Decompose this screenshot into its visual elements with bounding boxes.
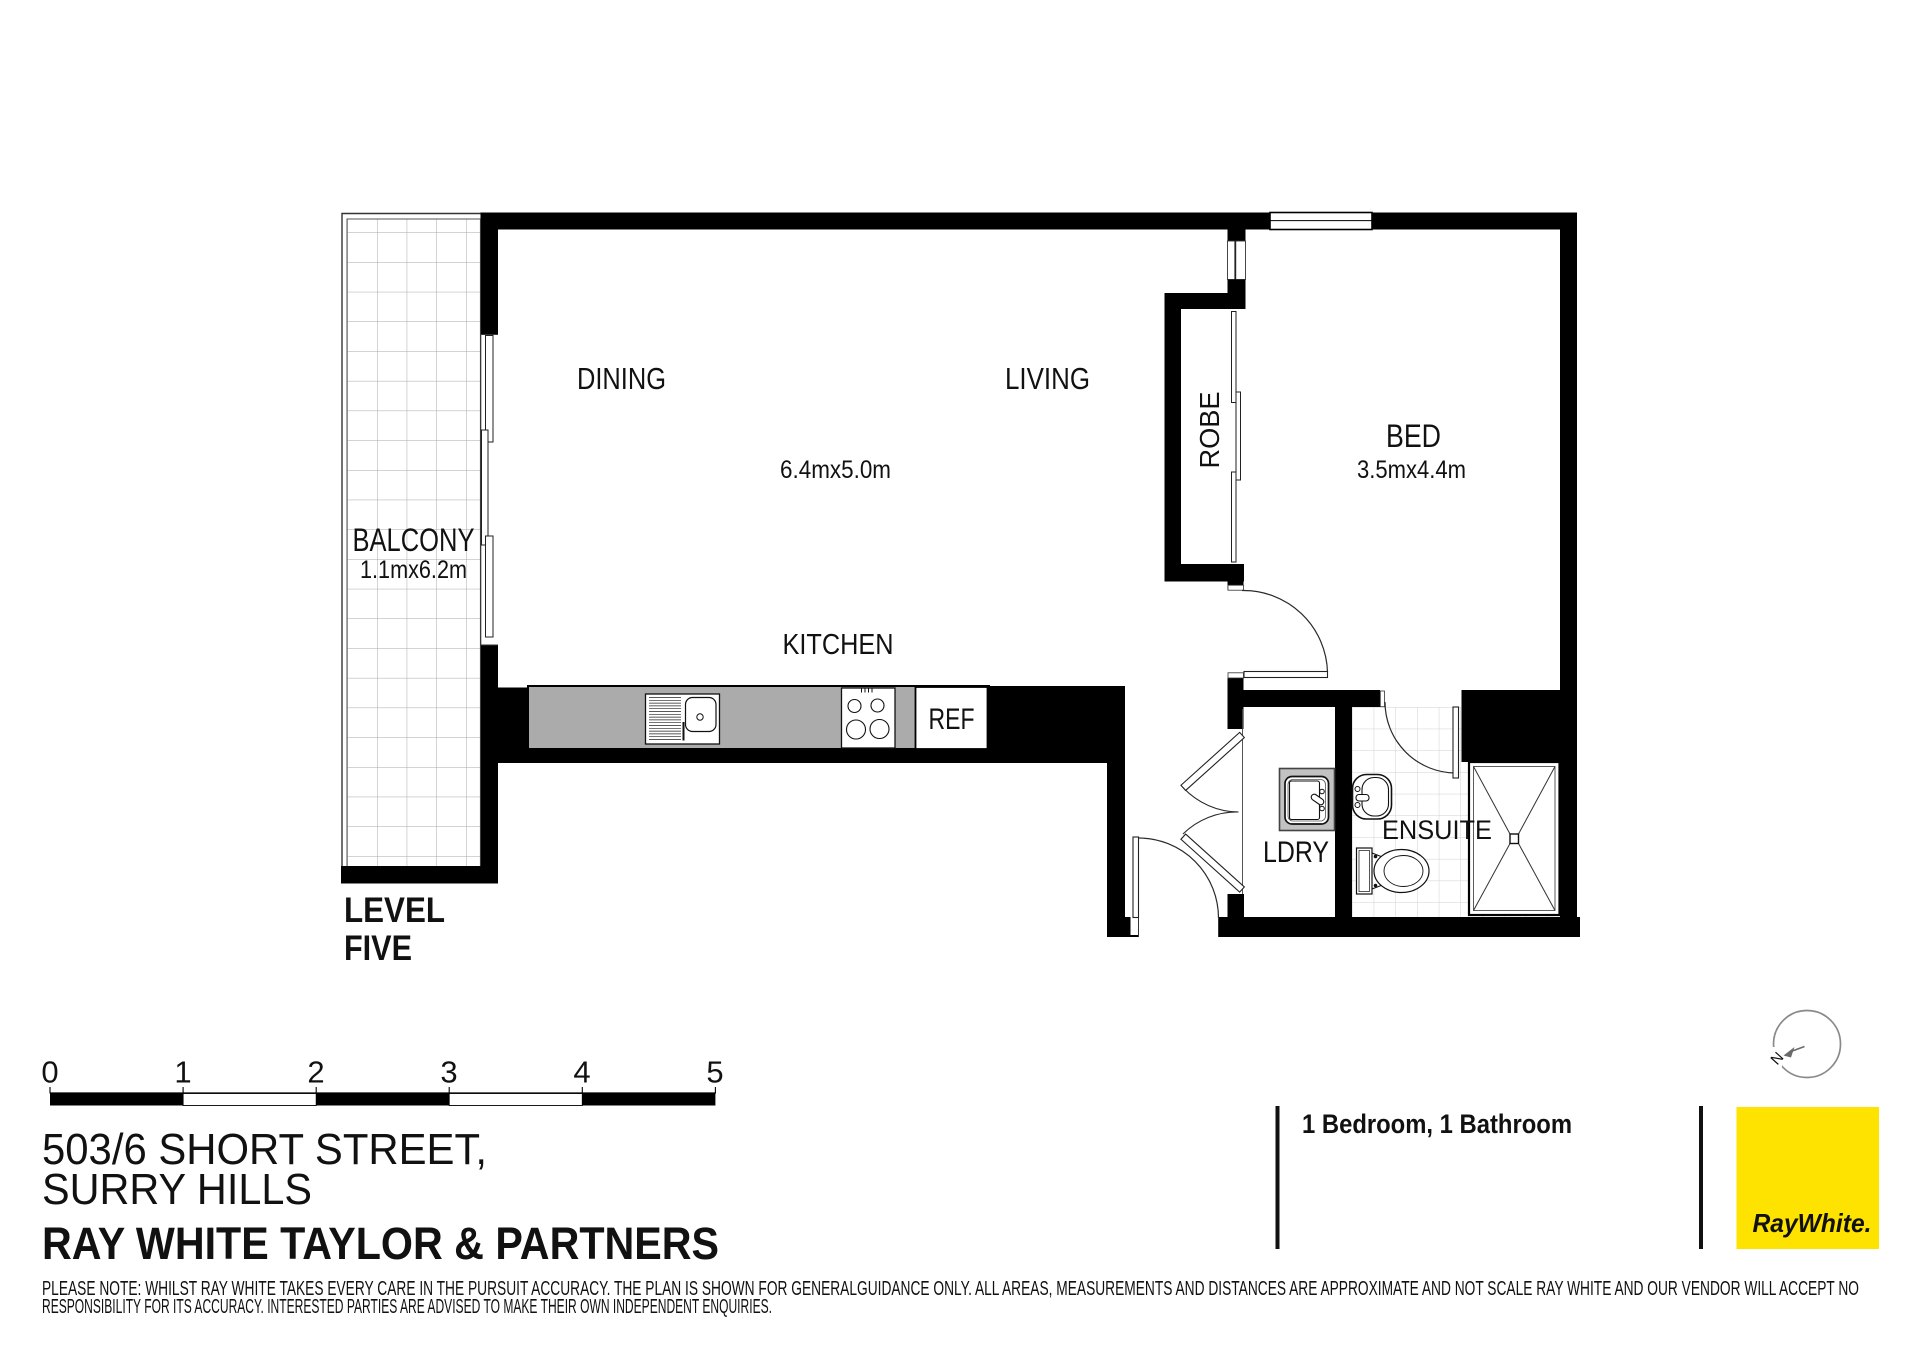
svg-text:RayWhite.: RayWhite. — [1753, 1208, 1872, 1238]
svg-text:4: 4 — [573, 1055, 590, 1090]
svg-text:1: 1 — [174, 1055, 191, 1090]
svg-text:REF: REF — [929, 703, 975, 736]
svg-text:DINING: DINING — [577, 361, 666, 396]
svg-text:LIVING: LIVING — [1005, 361, 1090, 396]
svg-text:1 Bedroom, 1 Bathroom: 1 Bedroom, 1 Bathroom — [1302, 1109, 1572, 1139]
svg-text:KITCHEN: KITCHEN — [783, 629, 894, 661]
svg-text:0: 0 — [41, 1055, 58, 1090]
svg-text:6.4mx5.0m: 6.4mx5.0m — [780, 456, 891, 484]
svg-text:BED: BED — [1386, 418, 1441, 454]
svg-text:LDRY: LDRY — [1263, 836, 1329, 869]
svg-text:SURRY HILLS: SURRY HILLS — [42, 1165, 312, 1214]
svg-text:RESPONSIBILITY FOR ITS ACCURAC: RESPONSIBILITY FOR ITS ACCURACY. INTERES… — [42, 1296, 772, 1318]
svg-text:3.5mx4.4m: 3.5mx4.4m — [1357, 456, 1466, 484]
svg-text:RAY WHITE TAYLOR & PARTNERS: RAY WHITE TAYLOR & PARTNERS — [42, 1218, 719, 1269]
svg-text:LEVEL: LEVEL — [344, 891, 445, 930]
svg-text:5: 5 — [706, 1055, 723, 1090]
svg-text:1.1mx6.2m: 1.1mx6.2m — [360, 556, 467, 584]
svg-text:BALCONY: BALCONY — [353, 522, 475, 558]
svg-text:ENSUITE: ENSUITE — [1382, 815, 1492, 845]
svg-text:3: 3 — [440, 1055, 457, 1090]
svg-text:2: 2 — [307, 1055, 324, 1090]
svg-text:ROBE: ROBE — [1194, 392, 1225, 469]
svg-text:FIVE: FIVE — [344, 929, 412, 968]
